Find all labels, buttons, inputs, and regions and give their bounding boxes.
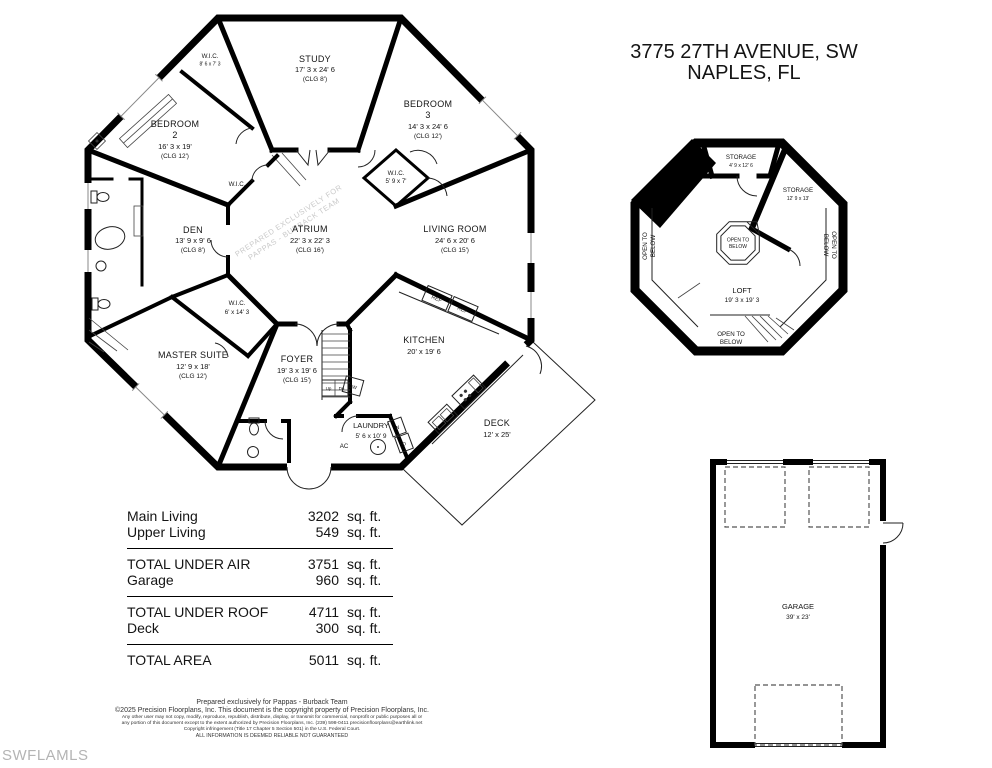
svg-text:13' 9 x 9' 6: 13' 9 x 9' 6 xyxy=(175,236,211,245)
svg-text:(CLG 8'): (CLG 8') xyxy=(303,76,327,83)
svg-text:(CLG 12'): (CLG 12') xyxy=(414,133,442,140)
window-west-2 xyxy=(83,250,93,272)
svg-text:BELOW: BELOW xyxy=(822,234,829,257)
bedroom2-label: BEDROOM xyxy=(151,119,200,129)
svg-text:19' 3 x 19' 6: 19' 3 x 19' 6 xyxy=(277,366,317,375)
svg-text:4' 9 x 12' 6: 4' 9 x 12' 6 xyxy=(729,163,753,169)
svg-text:BELOW: BELOW xyxy=(720,339,743,346)
open-below-bottom-label: OPEN TO xyxy=(717,331,745,338)
study-label: STUDY xyxy=(299,54,331,64)
atrium-label: ATRIUM xyxy=(292,224,328,234)
window-nw xyxy=(117,74,162,119)
address-line2: NAPLES, FL xyxy=(596,63,892,84)
entrance-doors xyxy=(287,461,331,489)
address-title: 3775 27TH AVENUE, SW NAPLES, FL xyxy=(596,42,892,84)
svg-text:8' 6 x 7' 3: 8' 6 x 7' 3 xyxy=(199,62,220,68)
toilet-icon xyxy=(91,191,109,203)
svg-text:12' 9 x 13': 12' 9 x 13' xyxy=(787,196,810,202)
garage-side-door xyxy=(879,521,903,545)
stairs-up-label: Up xyxy=(326,386,332,391)
floorplan-page: DECK 12' x 25' xyxy=(0,0,992,768)
legal-line-1: Any other user may not copy, modify, rep… xyxy=(105,715,439,721)
svg-text:22' 3 x 22' 3: 22' 3 x 22' 3 xyxy=(290,236,330,245)
garage-bay-2 xyxy=(809,467,869,527)
table-row: TOTAL AREA5011sq. ft. xyxy=(127,652,393,668)
tub-icon xyxy=(93,223,128,252)
svg-text:PREPARED EXCLUSIVELY FOR: PREPARED EXCLUSIVELY FOR xyxy=(233,183,343,259)
svg-text:OPEN TO: OPEN TO xyxy=(830,231,837,259)
svg-text:5' 6 x 10' 9: 5' 6 x 10' 9 xyxy=(355,433,386,440)
svg-text:2: 2 xyxy=(172,130,177,140)
kitchen-label: KITCHEN xyxy=(403,335,445,345)
svg-text:17' 3 x 24' 6: 17' 3 x 24' 6 xyxy=(295,65,335,74)
dryer-label: D xyxy=(402,441,408,448)
open-below-right-label: OPEN TO BELOW xyxy=(822,231,837,259)
open-below-center-label: OPEN TO xyxy=(727,238,749,244)
svg-text:12' 9 x 18': 12' 9 x 18' xyxy=(176,362,210,371)
master-suite-label: MASTER SUITE xyxy=(158,350,228,360)
disclaimer-line: ALL INFORMATION IS DEEMED RELIABLE NOT G… xyxy=(105,733,439,740)
prepared-for-line: Prepared exclusively for Pappas - Burbac… xyxy=(105,699,439,707)
garage-label: GARAGE xyxy=(782,602,814,611)
window-east-1 xyxy=(526,233,536,263)
svg-text:39' x 23': 39' x 23' xyxy=(786,614,810,621)
svg-text:(CLG 16'): (CLG 16') xyxy=(296,247,324,254)
foyer-label: FOYER xyxy=(281,354,314,364)
svg-text:6' x 14' 3: 6' x 14' 3 xyxy=(225,309,250,316)
upper-floor-plan: STORAGE 4' 9 x 12' 6 STORAGE 12' 9 x 13'… xyxy=(631,139,843,351)
sink-round-icon xyxy=(96,261,106,271)
deck-door xyxy=(505,342,542,374)
copyright-line: ©2025 Precision Floorplans, Inc. This do… xyxy=(105,707,439,715)
svg-text:(CLG 8'): (CLG 8') xyxy=(181,247,205,254)
table-row: Upper Living549sq. ft. xyxy=(127,524,393,540)
svg-text:3: 3 xyxy=(425,110,430,120)
address-line1: 3775 27TH AVENUE, SW xyxy=(596,42,892,63)
storage2-label: STORAGE xyxy=(783,187,813,194)
stairs: Up Dn xyxy=(322,330,350,400)
garage-bay-3 xyxy=(755,685,842,745)
mls-watermark: SWFLAMLS xyxy=(2,747,89,764)
table-row: TOTAL UNDER AIR3751sq. ft. xyxy=(127,556,393,572)
wic-bed3-label: W.I.C. xyxy=(388,170,405,177)
svg-text:19' 3 x 19' 3: 19' 3 x 19' 3 xyxy=(725,297,760,304)
table-divider xyxy=(127,596,393,597)
svg-text:(CLG 12'): (CLG 12') xyxy=(161,153,189,160)
table-divider xyxy=(127,644,393,645)
wic-master-label: W.I.C. xyxy=(229,300,246,307)
garage-bay-1 xyxy=(725,467,785,527)
main-room-labels: STUDY 17' 3 x 24' 6 (CLG 8') BEDROOM 2 1… xyxy=(151,53,487,440)
ac-label: AC xyxy=(340,443,349,450)
window-ne xyxy=(479,97,521,140)
wic-hall-label: W.I.C. xyxy=(229,181,246,188)
window-sw xyxy=(132,383,168,418)
svg-text:(CLG 15'): (CLG 15') xyxy=(441,247,469,254)
den-label: DEN xyxy=(183,225,203,235)
table-divider xyxy=(127,548,393,549)
toilet-2-icon xyxy=(92,298,110,310)
svg-text:(CLG 15'): (CLG 15') xyxy=(283,377,311,384)
svg-text:14' 3 x 24' 6: 14' 3 x 24' 6 xyxy=(408,122,448,131)
svg-text:(CLG 12'): (CLG 12') xyxy=(179,373,207,380)
open-below-left-label: OPEN TO BELOW xyxy=(642,232,657,260)
svg-text:BELOW: BELOW xyxy=(650,235,657,258)
svg-text:5' 9 x 7': 5' 9 x 7' xyxy=(386,178,407,185)
table-row: Garage960sq. ft. xyxy=(127,572,393,588)
deck-label: DECK xyxy=(484,418,510,428)
svg-text:24' 6 x 20' 6: 24' 6 x 20' 6 xyxy=(435,236,475,245)
area-summary-table: Main Living3202sq. ft. Upper Living549sq… xyxy=(127,508,393,668)
svg-text:OPEN TO: OPEN TO xyxy=(642,232,649,260)
storage1-label: STORAGE xyxy=(726,154,756,161)
table-row: Deck300sq. ft. xyxy=(127,620,393,636)
bedroom3-label: BEDROOM xyxy=(404,99,453,109)
powder-sink-icon xyxy=(248,447,259,458)
svg-text:BELOW: BELOW xyxy=(729,244,747,250)
garage-plan: GARAGE 39' x 23' xyxy=(713,458,903,749)
table-row: Main Living3202sq. ft. xyxy=(127,508,393,524)
wic-top-label: W.I.C. xyxy=(202,53,219,60)
svg-text:16' 3 x 19': 16' 3 x 19' xyxy=(158,142,192,151)
main-floor-plan: DECK 12' x 25' xyxy=(83,18,595,525)
loft-label: LOFT xyxy=(732,286,752,295)
plan-watermark: PREPARED EXCLUSIVELY FOR PAPPAS - BURBAC… xyxy=(233,183,349,267)
table-row: TOTAL UNDER ROOF4711sq. ft. xyxy=(127,604,393,620)
copyright-block: Prepared exclusively for Pappas - Burbac… xyxy=(105,699,439,740)
living-room-label: LIVING ROOM xyxy=(423,224,486,234)
deck-dims: 12' x 25' xyxy=(483,430,511,439)
window-east-2 xyxy=(526,292,536,318)
laundry-label: LAUNDRY xyxy=(353,421,389,430)
svg-text:20' x 19' 6: 20' x 19' 6 xyxy=(407,347,441,356)
washer-label: W xyxy=(394,425,401,432)
